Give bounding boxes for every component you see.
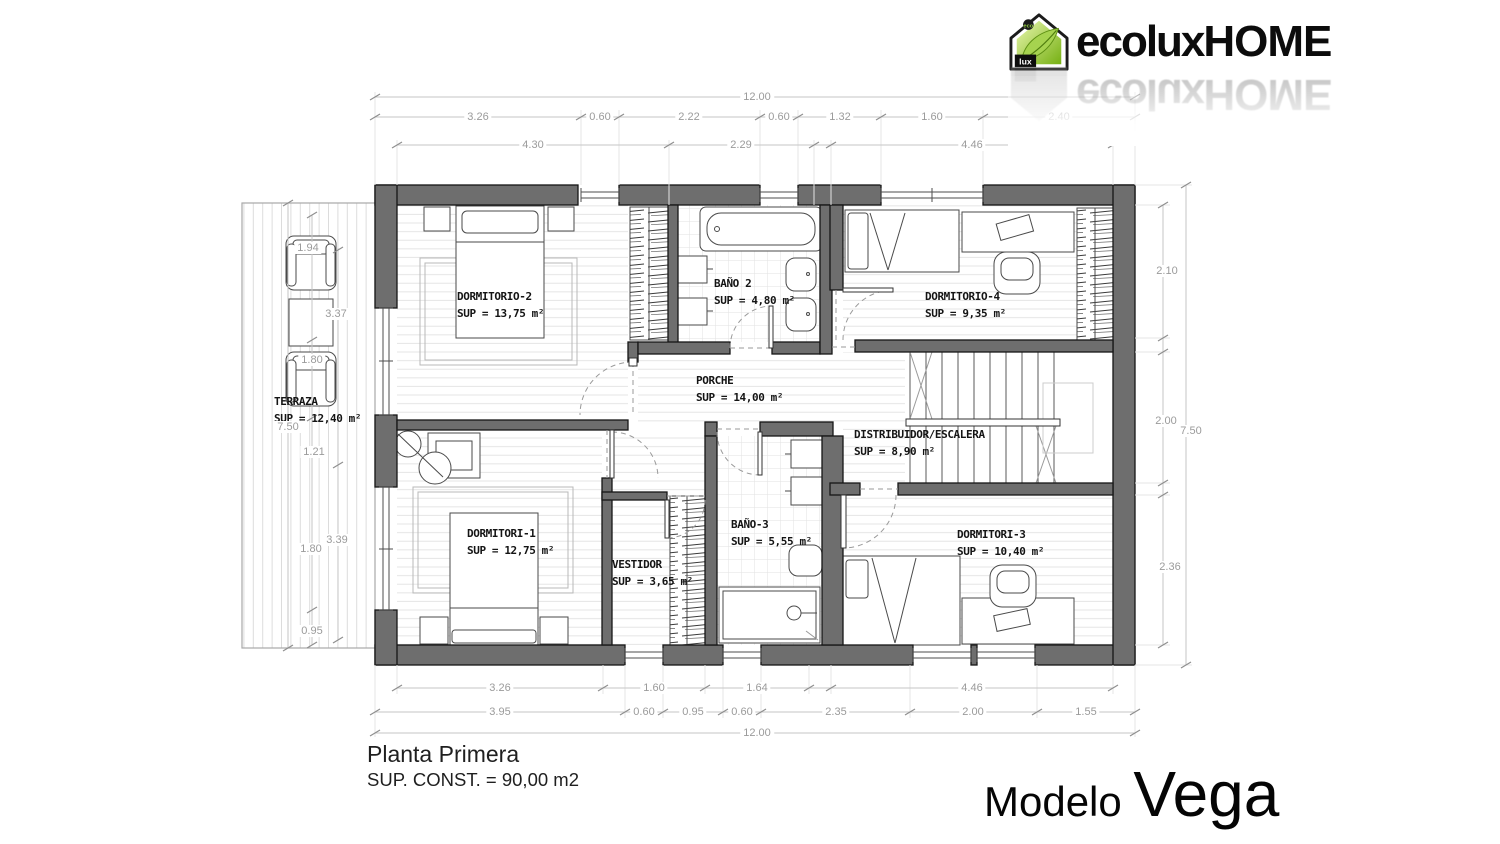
window-top-2 (760, 188, 798, 202)
model-prefix: Modelo (984, 778, 1133, 825)
bedroom2-wardrobe (630, 207, 668, 340)
window-top-1 (581, 188, 619, 202)
bedroom4-wardrobe (1077, 208, 1113, 340)
window-top-3 (881, 188, 983, 202)
window-left-2 (379, 487, 393, 610)
model-title: Modelo Vega (984, 757, 1279, 831)
model-name: Vega (1133, 758, 1279, 830)
logo-house-icon: eco lux (1008, 12, 1070, 72)
logo-reflection-fade (1008, 76, 1348, 146)
logo-icon-eco-label: eco (1023, 23, 1033, 29)
terrace-armchair-top (286, 236, 336, 290)
plan-title: Planta Primera (367, 741, 519, 768)
logo-wordmark-home: HOME (1203, 17, 1331, 66)
logo-wordmark: ecoluxHOME (1076, 20, 1331, 64)
terrace-table (289, 299, 333, 346)
stairs (906, 352, 1093, 483)
terrace-armchair-bottom (286, 352, 336, 406)
window-bottom-1 (625, 648, 663, 662)
plan-built-area: SUP. CONST. = 90,00 m2 (367, 769, 579, 791)
window-left-1 (379, 308, 393, 415)
logo-main: eco lux ecoluxHOME (1008, 12, 1348, 72)
logo: eco lux ecoluxHOME ecoluxHOME (1008, 12, 1348, 124)
logo-wordmark-ecolux: ecolux (1076, 17, 1203, 66)
window-bottom-2 (723, 648, 761, 662)
